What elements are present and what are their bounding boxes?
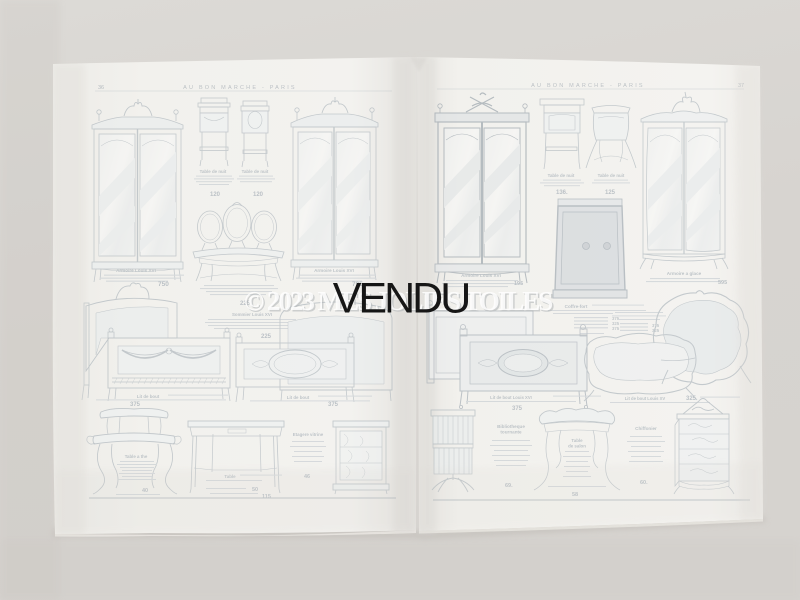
svg-text:Table: Table <box>571 438 583 443</box>
svg-text:Armoire Louis XVI: Armoire Louis XVI <box>116 268 156 273</box>
svg-text:125: 125 <box>605 190 616 196</box>
svg-text:Table de nuit: Table de nuit <box>200 169 227 174</box>
svg-text:325: 325 <box>686 396 697 402</box>
svg-text:Chiffonier: Chiffonier <box>635 426 657 431</box>
svg-text:AU BON MARCHE - PARIS: AU BON MARCHE - PARIS <box>183 85 297 91</box>
svg-text:Bibliotheque: Bibliotheque <box>497 424 525 429</box>
svg-text:Table de nuit: Table de nuit <box>548 173 575 178</box>
svg-text:Armoire a glace: Armoire a glace <box>667 271 702 276</box>
svg-text:Table de nuit: Table de nuit <box>598 173 625 178</box>
svg-text:VENDU: VENDU <box>333 275 469 323</box>
svg-text:36: 36 <box>98 85 104 91</box>
svg-text:136.: 136. <box>556 190 568 196</box>
svg-text:AU BON MARCHE - PARIS: AU BON MARCHE - PARIS <box>531 83 645 89</box>
svg-text:375: 375 <box>328 402 339 408</box>
svg-text:Lit de bout Louis XV: Lit de bout Louis XV <box>625 396 666 401</box>
svg-text:Table de nuit: Table de nuit <box>242 169 269 174</box>
svg-text:120: 120 <box>253 192 264 198</box>
svg-text:120: 120 <box>210 192 221 198</box>
svg-text:325: 325 <box>652 328 660 333</box>
svg-text:595: 595 <box>718 280 727 286</box>
svg-text:tournante: tournante <box>500 430 522 435</box>
svg-text:375: 375 <box>130 402 141 408</box>
svg-text:Table a the: Table a the <box>125 454 148 459</box>
svg-text:225: 225 <box>261 334 272 340</box>
svg-text:Etagere vitrine: Etagere vitrine <box>293 432 324 437</box>
svg-text:Lit de bout Louis XVI: Lit de bout Louis XVI <box>490 395 532 400</box>
svg-text:375: 375 <box>612 326 620 331</box>
svg-text:750: 750 <box>158 281 169 288</box>
svg-text:Armoire Louis XVI: Armoire Louis XVI <box>314 268 354 273</box>
svg-text:de salon: de salon <box>568 443 586 448</box>
svg-text:Lit de bout: Lit de bout <box>287 395 310 400</box>
svg-text:Coffre-fort: Coffre-fort <box>565 304 588 309</box>
svg-text:375: 375 <box>512 406 523 412</box>
svg-text:Lit de bout: Lit de bout <box>137 394 160 399</box>
